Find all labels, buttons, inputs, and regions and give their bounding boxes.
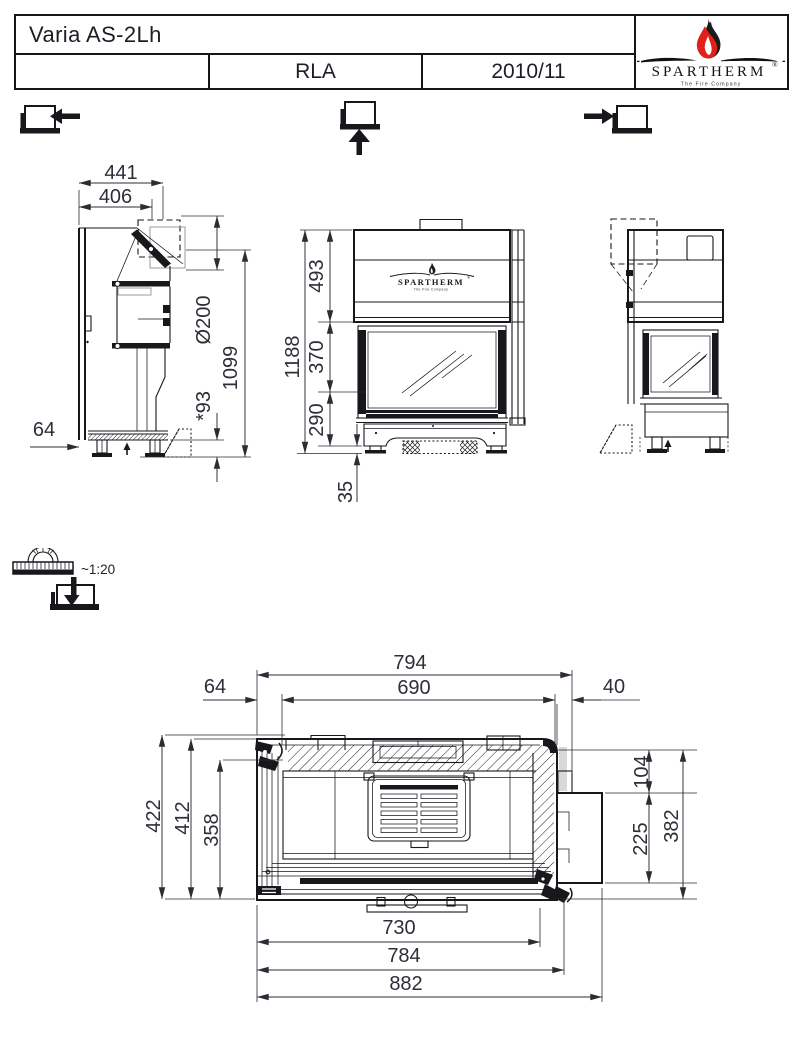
front-logo-name: SPARTHERM [398, 277, 464, 287]
plan-view-icon [50, 577, 99, 610]
front-logo: SPARTHERM ® The Fire Company [390, 262, 474, 292]
view-direction-bar [0, 95, 805, 155]
brand-name: SPARTHERM [651, 64, 766, 80]
dim-base-height: 290 [306, 403, 328, 436]
dim-depth-right: 382 [661, 809, 683, 842]
dim-opening-width: 690 [397, 677, 430, 699]
dim-foot-adjust: *93 [193, 391, 215, 421]
side-right-view [600, 219, 728, 453]
view-marker-right-icon [584, 106, 652, 134]
front-logo-reg: ® [467, 275, 470, 280]
title-block-empty-cell [16, 55, 210, 88]
dim-width-inner: 406 [99, 186, 132, 208]
title-block: Varia AS-2Lh RLA 2010/11 SPARTHERM [14, 14, 789, 90]
dim-depth-total: 422 [143, 799, 165, 832]
dim-offset-left: 64 [204, 676, 226, 698]
model-name: Varia AS-2Lh [16, 16, 634, 55]
dim-duct-depth: 225 [630, 822, 652, 855]
brand-tagline: The Fire Company [680, 82, 741, 88]
front-logo-tagline: The Fire Company [414, 288, 448, 292]
air-system-cell: RLA [210, 55, 423, 88]
arrow-right-icon [584, 109, 614, 125]
registered-mark: ® [772, 60, 778, 69]
dim-duct-offset: 104 [631, 755, 653, 788]
scale-and-plan-indicator: ~1:20 [0, 548, 805, 623]
logo-base-swoosh [637, 58, 785, 63]
dim-depth-body: 412 [172, 801, 194, 834]
dim-depth-inner: 358 [201, 813, 223, 846]
dim-flue-diameter: Ø200 [193, 296, 215, 345]
flame-icon [696, 17, 720, 59]
spartherm-logo: SPARTHERM ® The Fire Company [637, 16, 787, 88]
dim-width-outer: 441 [104, 162, 137, 184]
dim-glass-height: 370 [306, 340, 328, 373]
dim-offset-right: 40 [603, 676, 625, 698]
plan-dimensions: 794 690 64 40 422 412 358 104 225 382 73… [143, 652, 697, 1002]
elevation-views: 441 406 Ø200 1099 *93 64 SPARTHERM ® [0, 150, 805, 550]
arrow-down-icon [64, 577, 80, 606]
dim-hood-height: 493 [306, 259, 328, 292]
front-view: SPARTHERM ® The Fire Company [282, 220, 525, 504]
view-marker-top-icon [340, 102, 380, 155]
dim-width-top: 794 [393, 652, 426, 674]
plan-body [255, 736, 602, 913]
dim-max-width: 882 [389, 973, 422, 995]
scale-ratio-label: ~1:20 [81, 562, 115, 577]
plan-view: 794 690 64 40 422 412 358 104 225 382 73… [0, 640, 805, 1045]
view-marker-left-icon [20, 106, 80, 134]
scale-ruler-icon [13, 548, 73, 574]
dim-total-height: 1188 [282, 335, 304, 378]
dim-front-width: 784 [387, 945, 420, 967]
door-handle [367, 895, 467, 912]
dim-front-inner-width: 730 [382, 917, 415, 939]
model-year-cell: 2010/11 [423, 55, 634, 88]
brand-logo: SPARTHERM ® The Fire Company [634, 16, 787, 88]
dim-rear-offset: 64 [33, 419, 55, 441]
dim-floor-clearance: 35 [335, 481, 357, 503]
dim-height-flue-axis: 1099 [220, 346, 242, 391]
latch-detail-bottom-left [258, 886, 281, 895]
drawing-sheet: Varia AS-2Lh RLA 2010/11 SPARTHERM [0, 0, 805, 1045]
side-left-view: 441 406 Ø200 1099 *93 64 [30, 162, 251, 482]
